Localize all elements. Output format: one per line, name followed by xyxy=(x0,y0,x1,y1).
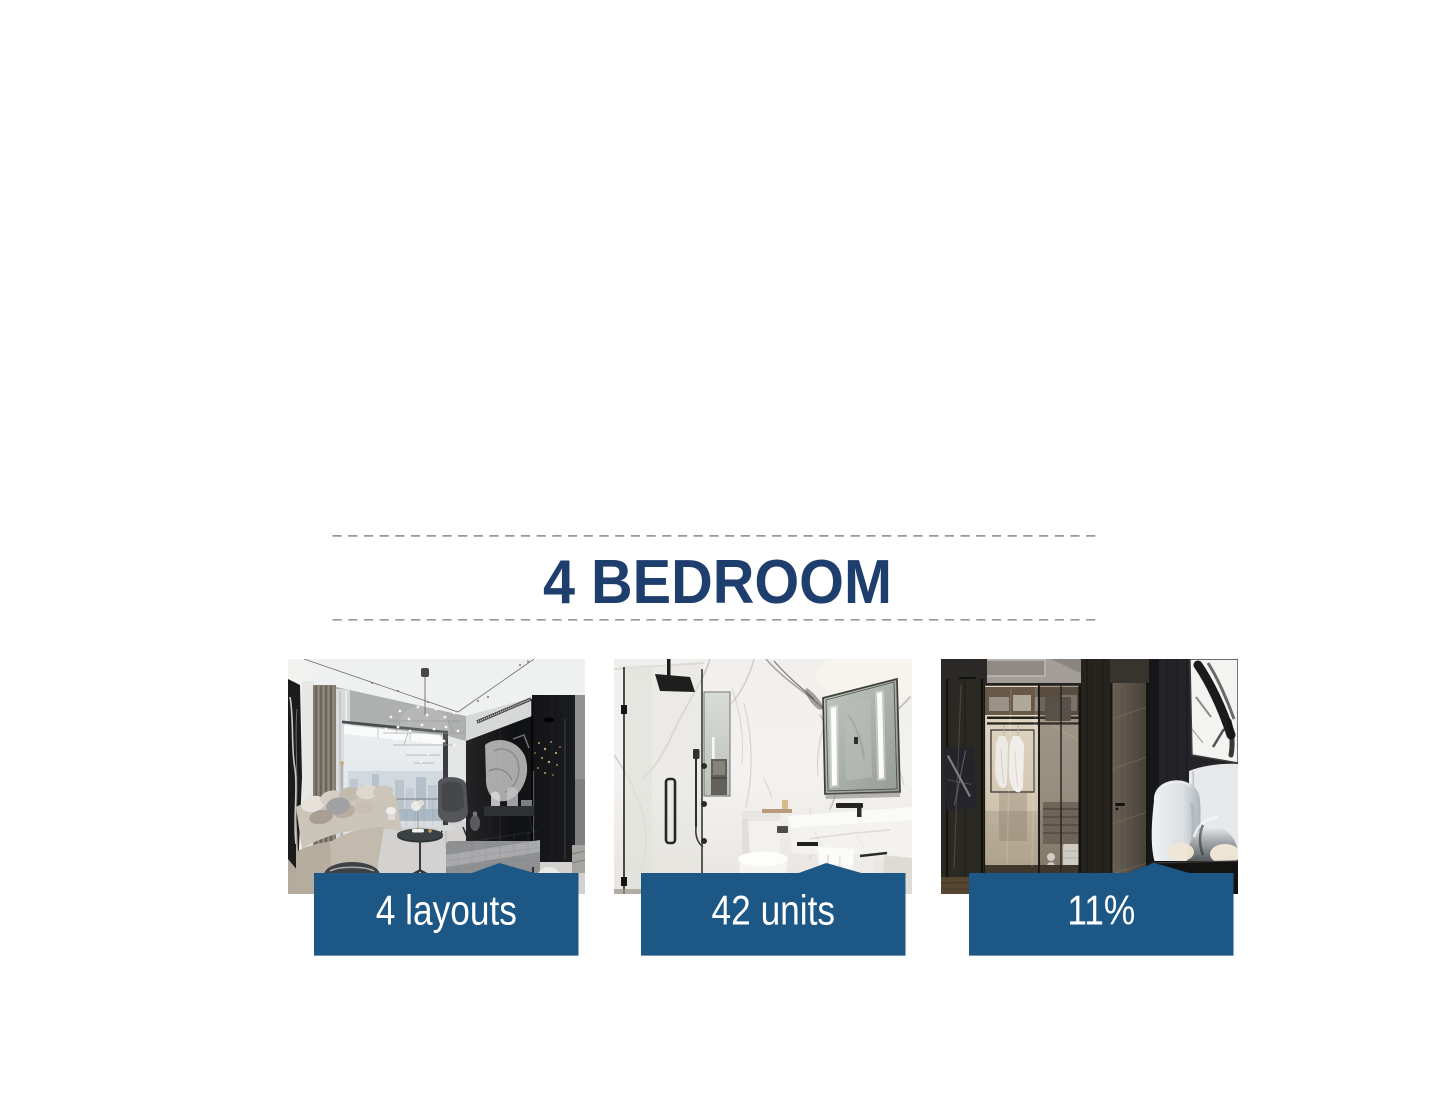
svg-text:42 units: 42 units xyxy=(712,887,836,934)
svg-text:4 layouts: 4 layouts xyxy=(376,887,517,934)
svg-text:11%: 11% xyxy=(1067,887,1135,934)
